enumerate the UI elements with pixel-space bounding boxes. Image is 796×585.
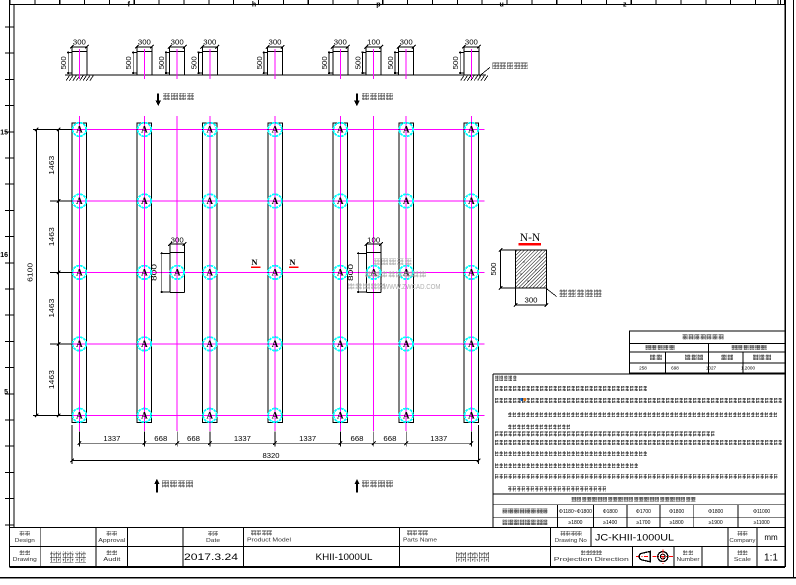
svg-text:≥1400: ≥1400	[603, 520, 617, 526]
svg-text:Company: Company	[729, 538, 756, 544]
svg-text:A: A	[468, 339, 475, 349]
svg-text:A: A	[141, 268, 148, 278]
svg-text:500: 500	[354, 56, 363, 69]
svg-text:258: 258	[639, 365, 647, 370]
svg-text:Φ1800: Φ1800	[603, 509, 618, 515]
svg-text:≥11000: ≥11000	[754, 520, 770, 526]
svg-text:500: 500	[386, 56, 395, 69]
svg-text:300: 300	[465, 37, 478, 46]
svg-text:15: 15	[0, 130, 8, 137]
svg-text:500: 500	[157, 56, 166, 69]
svg-text:z: z	[623, 2, 627, 9]
svg-text:u: u	[499, 2, 503, 9]
svg-text:Projection Direction: Projection Direction	[554, 557, 629, 563]
svg-text:500: 500	[59, 56, 68, 69]
svg-text:A: A	[403, 411, 410, 421]
svg-text:Product Model: Product Model	[247, 538, 291, 544]
svg-text:Parts Name: Parts Name	[403, 538, 437, 544]
svg-text:h: h	[252, 2, 256, 9]
svg-text:A: A	[272, 196, 279, 206]
svg-text:300: 300	[138, 37, 151, 46]
svg-text:mm: mm	[764, 533, 778, 542]
svg-text:A: A	[76, 268, 83, 278]
svg-text:1.2000: 1.2000	[741, 365, 755, 370]
svg-text:668: 668	[154, 434, 167, 443]
svg-text:N: N	[251, 257, 258, 267]
svg-text:A: A	[272, 125, 279, 135]
svg-text:≥1800: ≥1800	[568, 520, 582, 526]
svg-text:2017.3.24: 2017.3.24	[184, 552, 238, 563]
svg-text:5: 5	[4, 389, 8, 396]
svg-text:1027: 1027	[706, 365, 717, 370]
svg-text:A: A	[337, 125, 344, 135]
svg-text:698: 698	[671, 365, 679, 370]
svg-text:1463: 1463	[47, 156, 56, 175]
svg-text:16: 16	[0, 252, 8, 259]
svg-text:≥1800: ≥1800	[670, 520, 684, 526]
svg-text:Φ1700: Φ1700	[636, 509, 651, 515]
svg-text:668: 668	[187, 434, 200, 443]
svg-text:Φ1800: Φ1800	[669, 509, 684, 515]
svg-text:N: N	[289, 257, 296, 267]
svg-text:Date: Date	[206, 538, 220, 544]
svg-text:Scale: Scale	[734, 557, 751, 563]
svg-text:100: 100	[367, 37, 380, 46]
svg-text:≥1700: ≥1700	[636, 520, 650, 526]
svg-text:A: A	[468, 268, 475, 278]
svg-text:300: 300	[203, 37, 216, 46]
svg-text:A: A	[141, 196, 148, 206]
svg-text:A: A	[468, 196, 475, 206]
svg-text:Φ1180~Φ1800: Φ1180~Φ1800	[559, 509, 592, 515]
svg-text:6100: 6100	[25, 263, 34, 282]
svg-text:A: A	[207, 339, 214, 349]
svg-text:1337: 1337	[299, 434, 316, 443]
svg-text:A: A	[337, 411, 344, 421]
svg-text:A: A	[468, 125, 475, 135]
svg-text:Φ11000: Φ11000	[753, 509, 770, 515]
svg-text:WWW.ZWCAD.COM: WWW.ZWCAD.COM	[384, 282, 441, 291]
svg-text:300: 300	[400, 37, 413, 46]
svg-text:Approval: Approval	[98, 538, 125, 544]
svg-text:Drawing No: Drawing No	[555, 538, 587, 544]
svg-text:500: 500	[451, 56, 460, 69]
svg-text:500: 500	[320, 56, 329, 69]
svg-text:300: 300	[171, 37, 184, 46]
svg-text:A: A	[403, 196, 410, 206]
svg-text:A: A	[76, 125, 83, 135]
svg-text:A: A	[174, 268, 181, 278]
svg-text:500: 500	[255, 56, 264, 69]
svg-text:100: 100	[367, 235, 380, 244]
svg-text:300: 300	[525, 296, 538, 305]
svg-text:1337: 1337	[103, 434, 120, 443]
svg-text:N-N: N-N	[520, 232, 541, 244]
svg-text:Φ1800: Φ1800	[708, 509, 723, 515]
svg-text:≥1900: ≥1900	[709, 520, 723, 526]
svg-text:A: A	[141, 125, 148, 135]
svg-text:A: A	[141, 411, 148, 421]
svg-text:A: A	[337, 268, 344, 278]
svg-text:1:1: 1:1	[764, 553, 778, 564]
svg-text:500: 500	[489, 263, 498, 276]
svg-text:p: p	[376, 2, 380, 9]
svg-text:Design: Design	[15, 538, 35, 544]
svg-text:300: 300	[269, 37, 282, 46]
svg-text:8320: 8320	[263, 451, 280, 460]
svg-text:300: 300	[73, 37, 86, 46]
svg-text:A: A	[337, 339, 344, 349]
svg-text:A: A	[468, 411, 475, 421]
svg-text:A: A	[403, 125, 410, 135]
svg-text:A: A	[337, 196, 344, 206]
svg-text:A: A	[272, 268, 279, 278]
svg-text:1337: 1337	[430, 434, 447, 443]
svg-text:1337: 1337	[234, 434, 251, 443]
svg-text:Drawing: Drawing	[13, 557, 37, 563]
svg-text:A: A	[207, 125, 214, 135]
svg-text:1463: 1463	[47, 227, 56, 246]
svg-text:A: A	[76, 339, 83, 349]
svg-text:1463: 1463	[47, 299, 56, 318]
svg-text:Number: Number	[677, 557, 700, 563]
svg-text:Audit: Audit	[103, 557, 121, 563]
svg-text:A: A	[207, 196, 214, 206]
svg-text:A: A	[207, 411, 214, 421]
svg-text:668: 668	[351, 434, 364, 443]
svg-text:A: A	[76, 411, 83, 421]
svg-text:A: A	[272, 339, 279, 349]
svg-text:668: 668	[383, 434, 396, 443]
svg-text:300: 300	[334, 37, 347, 46]
svg-text:1463: 1463	[47, 370, 56, 389]
svg-text:A: A	[141, 339, 148, 349]
svg-text:JC-KHII-1000UL: JC-KHII-1000UL	[595, 533, 674, 543]
svg-text:A: A	[272, 411, 279, 421]
svg-text:A: A	[403, 339, 410, 349]
svg-text:A: A	[76, 196, 83, 206]
svg-text:500: 500	[190, 56, 199, 69]
svg-text:A: A	[207, 268, 214, 278]
svg-text:300: 300	[171, 235, 184, 244]
svg-text:KHII-1000UL: KHII-1000UL	[316, 552, 373, 563]
svg-text:500: 500	[124, 56, 133, 69]
